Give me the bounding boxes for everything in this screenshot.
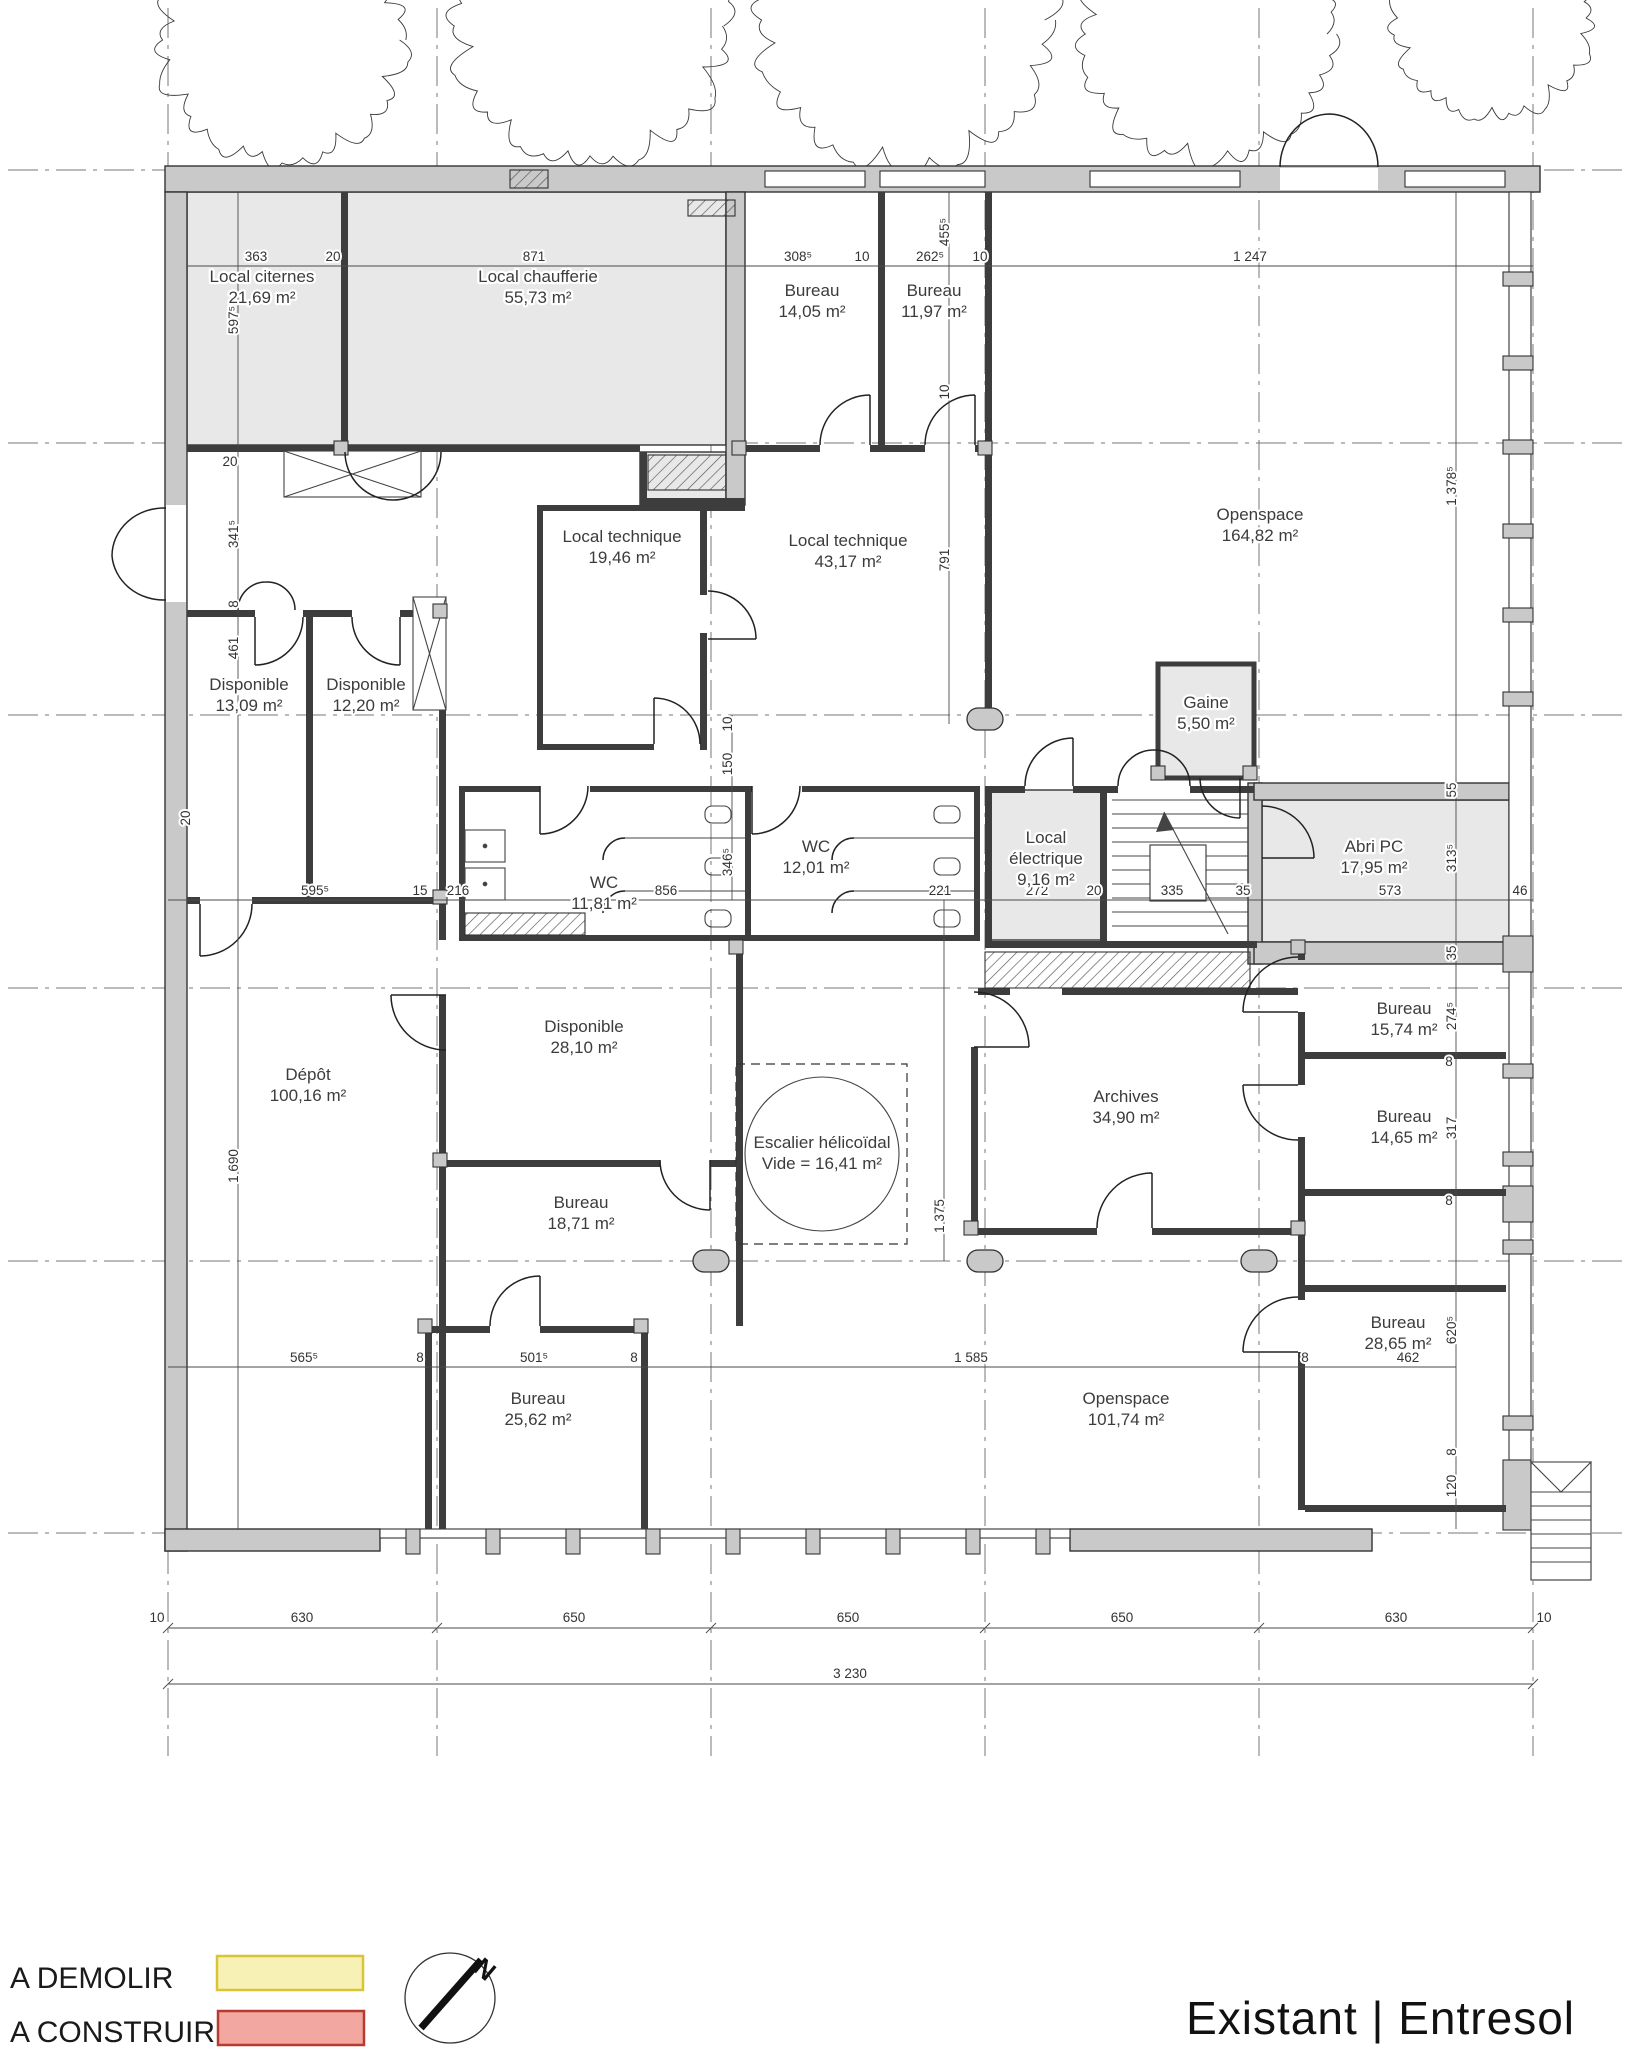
- room-label: 12,20 m²: [332, 696, 399, 715]
- dimension-label: 35: [1235, 883, 1250, 898]
- window-top: [1090, 171, 1240, 187]
- tree-outline: [751, 0, 1063, 172]
- wall: [187, 897, 200, 904]
- floor-plan-canvas: 36320871308⁵10262⁵101 247597⁵455⁵107911 …: [0, 0, 1635, 2048]
- wall: [985, 786, 1025, 793]
- room-label: 101,74 m²: [1088, 1410, 1165, 1429]
- facade-post: [1503, 1240, 1533, 1254]
- column-capsule: [693, 1250, 729, 1272]
- door-archives-bottom: [1097, 1173, 1152, 1228]
- wall: [974, 786, 980, 941]
- dimension-label: 308⁵: [784, 249, 812, 264]
- wall: [1152, 1228, 1305, 1235]
- wall: [700, 505, 707, 595]
- room-label: Gaine: [1183, 693, 1228, 712]
- room-label: 25,62 m²: [504, 1410, 571, 1429]
- staircase: [1112, 800, 1248, 934]
- room-label: 28,65 m²: [1364, 1334, 1431, 1353]
- column-post: [433, 890, 447, 904]
- room-label: Vide = 16,41 m²: [762, 1154, 883, 1173]
- wall: [745, 445, 820, 452]
- dimension-label: 3 230: [833, 1666, 867, 1681]
- dimension-label: 501⁵: [520, 1350, 548, 1365]
- wall: [341, 192, 348, 445]
- wall: [187, 610, 255, 617]
- wall: [1305, 1052, 1506, 1059]
- door-depot-top: [200, 904, 252, 956]
- dimension-label: 35: [1444, 945, 1459, 960]
- room-label: Disponible: [209, 675, 288, 694]
- dimension-label: 595⁵: [301, 883, 329, 898]
- column-post: [634, 1319, 648, 1333]
- dimension-label: 8: [1301, 1350, 1309, 1365]
- wall: [802, 786, 980, 792]
- dimension-label: 10: [937, 384, 952, 399]
- wall: [745, 786, 751, 935]
- dimension-label: 620⁵: [1444, 1316, 1459, 1344]
- exterior-stair: [1531, 1462, 1591, 1580]
- tree-outline: [155, 0, 412, 168]
- wall: [1305, 1505, 1506, 1512]
- dimension-label: 10: [720, 716, 735, 731]
- bottom-post: [646, 1529, 660, 1554]
- door-wc-1: [540, 786, 588, 834]
- room-label: 18,71 m²: [547, 1214, 614, 1233]
- facade-pier: [1503, 1186, 1533, 1222]
- wall: [1298, 1352, 1305, 1510]
- room-label: 164,82 m²: [1222, 526, 1299, 545]
- room-label: 11,81 m²: [571, 894, 637, 913]
- facade-post: [1503, 440, 1533, 454]
- wall: [640, 498, 745, 505]
- room-label: 14,65 m²: [1370, 1128, 1437, 1147]
- room-label: 28,10 m²: [550, 1038, 617, 1057]
- dimension-label: 15: [412, 883, 427, 898]
- wall: [439, 1160, 660, 1167]
- room-floor-citernes-chaufferie: [187, 192, 726, 445]
- column-post: [729, 940, 743, 954]
- door-gap-entrance-left: [166, 505, 186, 602]
- wall-abri-left: [1248, 783, 1262, 964]
- wall: [736, 947, 743, 1160]
- wall: [306, 617, 313, 897]
- room-label: Local technique: [562, 527, 681, 546]
- room-label: 34,90 m²: [1092, 1108, 1159, 1127]
- dimension-label: 8: [1445, 1054, 1453, 1069]
- facade-post: [1503, 272, 1533, 286]
- door-bureau-2865: [1243, 1297, 1298, 1352]
- bottom-post: [406, 1529, 420, 1554]
- room-label: Bureau: [554, 1193, 609, 1212]
- dimension-label: 221: [929, 883, 952, 898]
- wall-bottom-left: [165, 1529, 380, 1551]
- dimension-label: 650: [837, 1610, 860, 1625]
- dimension-label: 10: [1536, 1610, 1551, 1625]
- room-label: Local citernes: [210, 267, 315, 286]
- dimension-label: 20: [1086, 883, 1101, 898]
- room-label: Bureau: [1371, 1313, 1426, 1332]
- wall: [710, 1160, 743, 1167]
- room-label: Bureau: [511, 1389, 566, 1408]
- room-label: WC: [802, 837, 830, 856]
- dimension-label: 262⁵: [916, 249, 944, 264]
- north-compass: N: [405, 1952, 502, 2043]
- wall: [303, 610, 352, 617]
- door-entrance-left: [112, 508, 166, 600]
- room-label: Bureau: [1377, 999, 1432, 1018]
- column-capsule: [967, 708, 1003, 730]
- column-post: [1151, 766, 1165, 780]
- wall: [985, 941, 1257, 948]
- room-label: 14,05 m²: [778, 302, 845, 321]
- door-electrique: [1025, 738, 1073, 786]
- door-bureau-2562: [490, 1276, 540, 1326]
- wall: [985, 192, 992, 726]
- column-post: [433, 1153, 447, 1167]
- dimension-label: 871: [523, 249, 546, 264]
- dimension-label: 8: [416, 1350, 424, 1365]
- column-post: [433, 604, 447, 618]
- facade-post: [1503, 692, 1533, 706]
- column-post: [732, 441, 746, 455]
- hatch-zone: [648, 455, 726, 490]
- wall: [459, 935, 980, 941]
- column-post: [1291, 1221, 1305, 1235]
- dimension-label: 455⁵: [937, 218, 952, 246]
- wall: [537, 744, 654, 750]
- wall: [252, 897, 446, 904]
- bottom-post: [486, 1529, 500, 1554]
- dimension-label: 20: [222, 454, 237, 469]
- bottom-post: [566, 1529, 580, 1554]
- wall: [1100, 786, 1107, 948]
- wall-pier-topleft-zone: [726, 192, 745, 505]
- room-label: 13,09 m²: [215, 696, 282, 715]
- door-archives-top: [974, 992, 1029, 1047]
- column-post: [978, 441, 992, 455]
- dimension-label: 346⁵: [720, 848, 735, 876]
- wall: [700, 633, 707, 750]
- sheet-title: Existant | Entresol: [1186, 1992, 1575, 2044]
- room-label: Disponible: [544, 1017, 623, 1036]
- room-label: 5,50 m²: [1177, 714, 1235, 733]
- hatch-zone: [510, 170, 548, 188]
- room-label: 15,74 m²: [1370, 1020, 1437, 1039]
- door-double-hall: [238, 582, 295, 610]
- dimension-label: 363: [245, 249, 268, 264]
- dimension-label: 630: [1385, 1610, 1408, 1625]
- dimension-label: 10: [149, 1610, 164, 1625]
- door-wc-2: [752, 786, 800, 834]
- room-label: Abri PC: [1345, 837, 1404, 856]
- door-depot: [391, 995, 446, 1050]
- dimension-label: 335: [1161, 883, 1184, 898]
- facade-corner: [1503, 1460, 1531, 1530]
- room-label: 21,69 m²: [228, 288, 295, 307]
- wall: [878, 192, 885, 445]
- legend-demolish-label: A DEMOLIR: [10, 1962, 173, 1995]
- legend-build-label: A CONSTRUIRE: [10, 2016, 235, 2048]
- tree-outline: [1388, 0, 1595, 120]
- facade-pier: [1503, 936, 1533, 972]
- column-capsule: [967, 1250, 1003, 1272]
- room-label: Escalier hélicoïdal: [753, 1133, 890, 1152]
- facade-post: [1503, 1416, 1533, 1430]
- north-letter: N: [468, 1952, 502, 1987]
- window-top: [765, 171, 865, 187]
- room-label: 17,95 m²: [1340, 858, 1407, 877]
- dimension-label: 150: [720, 753, 735, 776]
- dimension-label: 8: [630, 1350, 638, 1365]
- facade-post: [1503, 356, 1533, 370]
- facade-post: [1503, 1064, 1533, 1078]
- bottom-post: [806, 1529, 820, 1554]
- dimension-label: 1 378⁵: [1444, 466, 1459, 505]
- wall: [985, 786, 992, 948]
- wall: [425, 1326, 490, 1333]
- dimension-label: 461: [226, 637, 241, 660]
- hatch-zone: [465, 913, 585, 935]
- legend-demolish-swatch: [217, 1956, 363, 1990]
- dimension-label: 630: [291, 1610, 314, 1625]
- column-post: [418, 1319, 432, 1333]
- room-label: 9,16 m²: [1017, 870, 1075, 889]
- facade-post: [1503, 524, 1533, 538]
- bottom-post: [1036, 1529, 1050, 1554]
- hatch-zone: [688, 200, 735, 216]
- column-post: [964, 1221, 978, 1235]
- wall: [459, 786, 540, 792]
- room-label: Openspace: [1217, 505, 1304, 524]
- dimension-label: 20: [178, 810, 193, 825]
- wall: [537, 505, 745, 511]
- door-disponible-13: [255, 617, 303, 665]
- dimension-label: 1 690: [226, 1149, 241, 1183]
- window-top: [880, 171, 985, 187]
- wall: [1190, 786, 1254, 793]
- door-gaine: [1200, 778, 1240, 818]
- wall: [870, 445, 925, 452]
- wall: [459, 786, 465, 941]
- room-label: Local chaufferie: [478, 267, 598, 286]
- column-post: [334, 441, 348, 455]
- room-label: Bureau: [1377, 1107, 1432, 1126]
- column-capsule: [1241, 1250, 1277, 1272]
- wall: [1305, 1285, 1506, 1292]
- room-label: 12,01 m²: [782, 858, 849, 877]
- door-double-openspace-top: [1280, 114, 1378, 167]
- dimension-label: 55: [1444, 782, 1459, 797]
- bottom-post: [886, 1529, 900, 1554]
- room-label: Openspace: [1083, 1389, 1170, 1408]
- room-label: Archives: [1093, 1087, 1158, 1106]
- bottom-post: [726, 1529, 740, 1554]
- plan-sheet: 36320871308⁵10262⁵101 247597⁵455⁵107911 …: [0, 0, 1635, 2048]
- dimension-label: 341⁵: [226, 520, 241, 548]
- dimension-label: 20: [325, 249, 340, 264]
- wall: [971, 1228, 1097, 1235]
- dimension-label: 317: [1444, 1117, 1459, 1140]
- door-local-technique-43: [708, 591, 756, 639]
- dimension-label: 1 585: [954, 1350, 988, 1365]
- room-label: 43,17 m²: [814, 552, 881, 571]
- door-gap-openspace-top: [1280, 168, 1378, 190]
- room-label: Bureau: [907, 281, 962, 300]
- room-label: 55,73 m²: [504, 288, 571, 307]
- wall: [590, 786, 752, 792]
- wall: [1106, 786, 1118, 793]
- wall-bottom-right: [1070, 1529, 1372, 1551]
- door-bureau-1574: [1243, 957, 1298, 1012]
- column-post: [1243, 766, 1257, 780]
- dimension-label: 650: [563, 1610, 586, 1625]
- wall: [1062, 988, 1298, 995]
- wall: [641, 1326, 648, 1529]
- room-label: Disponible: [326, 675, 405, 694]
- window-band-right: [1509, 192, 1531, 1460]
- dimension-label: 10: [972, 249, 987, 264]
- door-local-technique-19: [654, 698, 700, 744]
- dimension-label: 1 375: [932, 1199, 947, 1233]
- wall: [1298, 1137, 1305, 1300]
- wall: [537, 505, 543, 750]
- wall: [1305, 1189, 1506, 1196]
- wall: [439, 995, 446, 1529]
- room-label: WC: [590, 873, 618, 892]
- window-top: [1405, 171, 1505, 187]
- dimension-label: 8: [1445, 1193, 1453, 1208]
- dimension-label: 565⁵: [290, 1350, 318, 1365]
- door-bureau-1871: [660, 1160, 710, 1210]
- door-disponible-12: [352, 617, 400, 665]
- dimension-label: 274⁵: [1444, 1002, 1459, 1030]
- column-post: [1291, 940, 1305, 954]
- dimension-label: 597⁵: [226, 306, 241, 334]
- legend-build-swatch: [218, 2011, 364, 2045]
- hatch-zone: [985, 952, 1250, 988]
- dimension-label: 650: [1111, 1610, 1134, 1625]
- wall-abri-top: [1254, 783, 1509, 800]
- room-label: Local: [1026, 828, 1067, 847]
- facade-post: [1503, 1152, 1533, 1166]
- dimension-label: 46: [1512, 883, 1527, 898]
- wall: [640, 452, 647, 505]
- wall: [971, 1047, 978, 1235]
- dimension-label: 1 247: [1233, 249, 1267, 264]
- legend: A DEMOLIR A CONSTRUIRE: [10, 1956, 364, 2048]
- dimension-label: 8: [1444, 1448, 1459, 1456]
- dimension-label: 573: [1379, 883, 1402, 898]
- wall: [978, 988, 1010, 995]
- tree-layer: [155, 0, 1595, 172]
- room-label: 100,16 m²: [270, 1086, 347, 1105]
- door-bureau-1405: [820, 395, 870, 445]
- wall: [736, 1167, 743, 1326]
- room-label: 11,97 m²: [901, 302, 967, 321]
- room-label: Bureau: [785, 281, 840, 300]
- dimension-label: 216: [447, 883, 470, 898]
- dimension-label: 791: [937, 549, 952, 572]
- dimension-label: 313⁵: [1444, 844, 1459, 872]
- room-label: 19,46 m²: [588, 548, 655, 567]
- wall-left: [165, 192, 187, 1551]
- room-label: Dépôt: [285, 1065, 331, 1084]
- dimension-label: 120: [1444, 1475, 1459, 1498]
- facade-post: [1503, 608, 1533, 622]
- dimension-label: 10: [854, 249, 869, 264]
- wall: [425, 1326, 432, 1529]
- door-bureau-1465: [1243, 1085, 1298, 1140]
- bottom-post: [966, 1529, 980, 1554]
- room-label: électrique: [1009, 849, 1083, 868]
- wall: [1298, 1012, 1305, 1085]
- room-label: Local technique: [788, 531, 907, 550]
- tree-outline: [1075, 0, 1339, 170]
- dimension-label: 8: [226, 600, 241, 608]
- door-bureau-1197: [925, 395, 975, 445]
- tree-outline: [446, 0, 735, 166]
- wall: [540, 1326, 648, 1333]
- dimension-label: 856: [655, 883, 678, 898]
